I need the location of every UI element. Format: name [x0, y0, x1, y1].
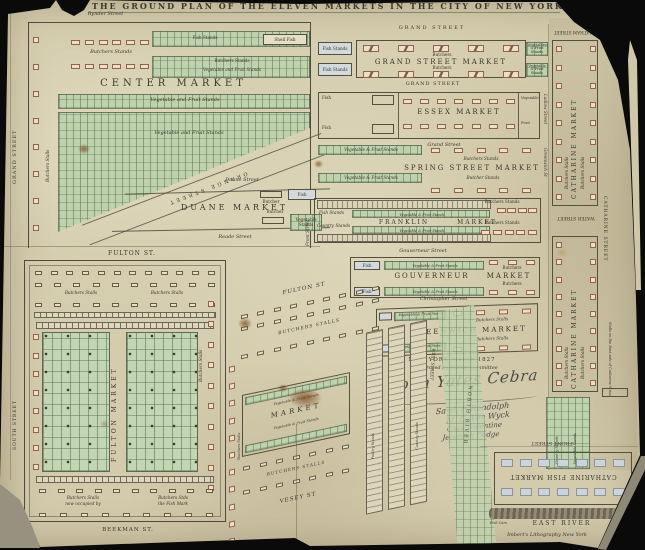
stall-box: [66, 271, 73, 275]
stall-box: [590, 277, 596, 283]
grand-fish2-box: Fish Stands: [318, 63, 352, 76]
stall-box: [208, 465, 214, 471]
stall-box: [169, 489, 176, 493]
stall-box: [590, 380, 596, 386]
stall-box: [33, 225, 39, 231]
stall-box: [229, 366, 235, 373]
franklin-veg1-label: Vegetable & Fruit Stands: [353, 213, 491, 217]
centre-stall-row: [70, 38, 150, 46]
stall-box: [260, 462, 267, 467]
stall-box: [33, 371, 39, 377]
stall-box: [229, 383, 235, 390]
stall-box: [140, 64, 149, 69]
fulton-numbered-strip: [36, 476, 214, 483]
franklin-country-label: Country Stands: [317, 224, 350, 229]
gouverneur-fish1-label: Fish: [362, 263, 371, 268]
franklin-fish-label: Fish Stands: [319, 211, 344, 216]
fulton-stall-row: [34, 269, 216, 277]
stall-box: [516, 230, 525, 235]
street-label-grand-top: GRAND STREET: [392, 26, 472, 32]
stall-box: [556, 176, 562, 182]
fold-line-horizontal: [0, 246, 320, 247]
stall-box: [557, 488, 569, 496]
grand-veg2-label: Vegetable & Fruit Stands: [527, 65, 547, 76]
stall-box: [33, 408, 39, 414]
stall-box: [208, 301, 214, 307]
centre-band2a-label: Butchers Stands: [153, 59, 311, 64]
stall-box: [326, 448, 333, 453]
stall-box: [290, 303, 297, 308]
stall-box: [33, 427, 39, 433]
fulton-stalls-right-label: Butchers Stalls: [199, 308, 204, 382]
stall-box: [528, 208, 537, 213]
spring-veg1-label: Vegetable & Fruit Stands: [319, 148, 423, 153]
stall-box: [372, 298, 379, 303]
spring-veg2-band: Vegetable & Fruit Stands: [318, 173, 422, 183]
stall-box: [33, 464, 39, 470]
stall-box: [33, 118, 39, 124]
stall-box: [73, 283, 80, 287]
stall-box: [590, 259, 596, 265]
street-label-catharine: CATHARINE STREET: [602, 196, 607, 314]
stall-box: [472, 124, 481, 129]
stall-box: [33, 64, 39, 70]
centre-stall-column: [31, 36, 41, 232]
stall-box: [243, 465, 250, 470]
fulton-numbered-strip: [34, 312, 216, 318]
franklin-veg2-label: Vegetable & Fruit Stands: [353, 229, 491, 233]
spring-butchers1-label: Butchers Stands: [438, 157, 524, 162]
catharine-market1-name: CATHARINE MARKET: [572, 49, 579, 199]
stall-box: [33, 198, 39, 204]
stall-box: [576, 459, 588, 467]
franklin-hatch-bottom: [317, 234, 491, 242]
map-title: THE GROUND PLAN OF THE ELEVEN MARKETS IN…: [92, 2, 552, 11]
stall-box: [538, 488, 550, 496]
stall-box: [454, 99, 463, 104]
stall-box: [39, 513, 46, 517]
title-rule: [88, 12, 560, 13]
franklin-butchers-row: [480, 228, 538, 236]
stall-box: [472, 99, 481, 104]
stall-box: [556, 380, 562, 386]
essex-fish1-label: Fish: [322, 96, 331, 101]
duane-fish-box: Fish: [288, 189, 316, 200]
stall-box: [35, 271, 42, 275]
stall-box: [499, 345, 508, 350]
stall-box: [260, 486, 267, 491]
stall-box: [131, 303, 138, 307]
stall-box: [58, 489, 65, 493]
fulton-market-name: FULTON MARKET: [112, 344, 119, 462]
stall-box: [229, 503, 235, 510]
stall-box: [493, 230, 502, 235]
grand-veg2-box: Vegetable & Fruit Stands: [526, 63, 548, 77]
stall-box: [506, 124, 515, 129]
catharine-m2-stalls1-label: Butchers Stalls: [565, 251, 570, 379]
stall-box: [556, 194, 562, 200]
stall-box: [189, 303, 196, 307]
stall-box: [274, 307, 281, 312]
street-label-rynder: Rynder Street: [58, 12, 153, 18]
stall-box: [522, 188, 531, 193]
stall-box: [73, 303, 80, 307]
stall-box: [556, 120, 562, 126]
washington-col2-label: Country Stands: [415, 359, 419, 450]
spring-butchers2-label: Butcher Stands: [440, 176, 526, 181]
street-label-front: Front Street: [306, 204, 311, 246]
centre-veg2-label: Vegetable and Fruit Stands: [89, 131, 289, 137]
stall-box: [76, 489, 83, 493]
grand-stall-row-top: [362, 44, 520, 52]
centre-butchers-stalls-label: Butchers Stalls: [46, 92, 51, 182]
fulton-stall-row: [38, 487, 214, 495]
essex-small-box: [372, 95, 394, 105]
centre-band2b-label: Vegetable and Fruit Stands: [153, 68, 311, 73]
stall-box: [454, 188, 463, 193]
imprint-label: Imbert's Lithography New York: [480, 533, 614, 539]
stall-box: [185, 513, 192, 517]
street-label-south: SOUTH STREET: [13, 338, 18, 450]
duane-butcher1-box: [260, 191, 282, 198]
catharine-side-note: Stalls on the East side of Catharine Str…: [608, 322, 612, 442]
stall-box: [112, 283, 119, 287]
stall-box: [192, 271, 199, 275]
stall-box: [323, 336, 330, 341]
stall-box: [274, 347, 281, 352]
stall-box: [489, 99, 498, 104]
stall-box: [590, 176, 596, 182]
stall-box: [229, 520, 235, 527]
stall-box: [54, 303, 61, 307]
stall-box: [590, 102, 596, 108]
stall-box: [326, 472, 333, 477]
spring-veg1-band: Vegetable & Fruit Stands: [318, 145, 422, 155]
catharine-stall-column: [588, 45, 597, 201]
grand-veg1-box: Vegetables & Fruit Stands: [526, 42, 548, 56]
franklin-butchers2-label: Butchers Stands: [468, 221, 536, 226]
fulton-right-grid: [126, 332, 198, 472]
stall-box: [556, 83, 562, 89]
essex-divider-right: [518, 92, 519, 139]
stall-box: [505, 230, 514, 235]
stall-box: [590, 65, 596, 71]
stall-box: [150, 489, 157, 493]
stall-box: [208, 362, 214, 368]
stall-box: [150, 303, 157, 307]
washington-column: [388, 324, 405, 510]
stall-box: [276, 458, 283, 463]
washington-col1-label: Poultry Stands: [371, 369, 375, 460]
stall-box: [590, 294, 596, 300]
stall-box: [208, 283, 215, 287]
fulton-note1b: now occupied by: [50, 502, 116, 507]
stall-box: [499, 148, 508, 153]
stall-box: [206, 513, 213, 517]
catharine-market2-name: CATHARINE MARKET: [572, 241, 579, 389]
stall-box: [437, 124, 446, 129]
stall-box: [590, 83, 596, 89]
stall-box: [556, 46, 562, 52]
stall-box: [594, 459, 606, 467]
catharine-fish-stall-row: [500, 458, 626, 468]
catharine-stall-column: [554, 45, 563, 201]
stall-box: [39, 489, 46, 493]
catharine-stall-column: [554, 241, 563, 387]
essex-veg-label: Vegetable: [521, 97, 539, 101]
fulton-left-grid: [42, 332, 110, 472]
stall-box: [557, 459, 569, 467]
stall-box: [398, 71, 414, 78]
street-label-greenwich-st: Greenwich St: [542, 148, 547, 196]
essex-fruit-label: Fruit: [521, 122, 539, 126]
catharine-fish-stall-row: [500, 487, 626, 497]
stall-box: [71, 40, 80, 45]
stall-box: [93, 303, 100, 307]
stall-box: [33, 91, 39, 97]
gouverneur-name2: MARKET: [482, 272, 536, 280]
street-label-beekman: BEEKMAN ST.: [92, 527, 164, 533]
stall-box: [477, 148, 486, 153]
fulton-stall-row: [38, 511, 214, 518]
stall-box: [257, 322, 264, 327]
stall-box: [506, 99, 515, 104]
stall-box: [290, 343, 297, 348]
stall-box: [433, 45, 449, 52]
centre-shellfish-box: Shell Fish: [263, 34, 307, 45]
stall-box: [102, 513, 109, 517]
stall-box: [170, 283, 177, 287]
stall-box: [590, 120, 596, 126]
stall-box: [433, 71, 449, 78]
stall-box: [526, 290, 535, 295]
stall-box: [556, 294, 562, 300]
catharine-m1-stalls1-label: Butchers Stalls: [565, 59, 570, 189]
stall-box: [307, 340, 314, 345]
franklin-hatch-top: [317, 200, 491, 209]
stall-box: [372, 286, 379, 291]
catharine-stall-column: [588, 241, 597, 387]
stall-box: [98, 271, 105, 275]
centre-butchers-stands-label: Butchers Stands: [72, 50, 150, 56]
stall-box: [93, 283, 100, 287]
stall-box: [556, 139, 562, 145]
fulton-stall-column-left: [31, 333, 40, 471]
stall-box: [489, 124, 498, 129]
stall-box: [276, 482, 283, 487]
stall-box: [229, 417, 235, 424]
catharine-market2-box: Butchers Stalls CATHARINE MARKET Butcher…: [552, 236, 598, 392]
stall-box: [339, 305, 346, 310]
stall-box: [274, 319, 281, 324]
stall-box: [613, 459, 625, 467]
stall-box: [208, 383, 214, 389]
stall-box: [556, 328, 562, 334]
spring-market-name: SPRING STREET MARKET: [398, 164, 546, 172]
stall-box: [54, 283, 61, 287]
fulton-stalls2-label: Butchers Stalls: [128, 291, 206, 296]
stall-box: [33, 171, 39, 177]
stall-box: [339, 293, 346, 298]
stall-box: [51, 271, 58, 275]
street-label-chatham: CHATHAM STREET: [550, 29, 600, 34]
stall-box: [556, 277, 562, 283]
centre-market-name: CENTER MARKET: [86, 78, 261, 90]
street-label-ludlow: Ludlow Street: [542, 94, 547, 138]
washington-stalls-left-label: Butchers Stalls: [237, 389, 241, 460]
stall-box: [363, 45, 379, 52]
stall-box: [33, 445, 39, 451]
stall-box: [520, 488, 532, 496]
stall-box: [189, 283, 196, 287]
duane-butcher2-label: Butcher: [262, 210, 288, 215]
stall-box: [123, 513, 130, 517]
street-label-fulton: FULTON ST.: [90, 251, 174, 258]
stall-box: [556, 65, 562, 71]
gouverneur-butchers-row: [488, 289, 536, 296]
stall-box: [522, 148, 531, 153]
stall-box: [82, 271, 89, 275]
stall-box: [33, 144, 39, 150]
stall-box: [129, 271, 136, 275]
grand-stall-row-bottom: [362, 70, 520, 78]
gouverneur-butchers2-label: Butchers: [490, 282, 534, 287]
grand-fish1-label: Fish Stands: [323, 46, 348, 51]
stall-box: [420, 99, 429, 104]
stall-box: [126, 64, 135, 69]
stall-box: [187, 489, 194, 493]
gouverneur-butchers1-label: Butchers: [490, 266, 534, 271]
essex-stall-row-bottom: [402, 122, 516, 130]
stall-box: [497, 208, 506, 213]
stall-box: [164, 513, 171, 517]
stall-box: [538, 459, 550, 467]
stall-box: [112, 64, 121, 69]
stall-box: [477, 188, 486, 193]
stall-box: [33, 390, 39, 396]
stall-box: [454, 148, 463, 153]
stall-box: [507, 208, 516, 213]
stall-box: [208, 342, 214, 348]
stall-box: [229, 451, 235, 458]
centre-fish-band: Fish Stands Shell Fish: [152, 31, 310, 47]
franklin-butchers1-label: Butchers Stands: [468, 200, 536, 205]
stall-box: [95, 489, 102, 493]
street-label-grand-bottom: GRAND STREET: [395, 82, 471, 88]
fulton-numbered-strip: [36, 322, 214, 329]
stall-box: [307, 300, 314, 305]
stall-box: [229, 486, 235, 493]
stall-box: [208, 403, 214, 409]
stall-box: [468, 45, 484, 52]
stall-box: [518, 208, 527, 213]
stall-box: [501, 459, 513, 467]
stall-box: [431, 148, 440, 153]
stall-box: [468, 71, 484, 78]
stall-box: [35, 303, 42, 307]
stall-box: [356, 289, 363, 294]
catharine-m1-stalls2-label: Butchers Stalls: [581, 59, 586, 189]
stall-box: [309, 475, 316, 480]
stall-box: [590, 328, 596, 334]
centre-veg-band: Vegetable and Fruit Stands: [58, 94, 310, 109]
stall-box: [99, 40, 108, 45]
fulton-stall-row: [34, 281, 216, 289]
fulton-note-right: Butchers Stds the Fish Mark: [136, 496, 210, 509]
map-sheet-photo: THE GROUND PLAN OF THE ELEVEN MARKETS IN…: [0, 0, 645, 550]
duane-butcher2-box: [262, 217, 284, 224]
washington-stall-column: [228, 364, 236, 546]
stall-box: [363, 71, 379, 78]
street-label-grand-left: GRAND STREET: [13, 64, 19, 184]
stall-box: [33, 37, 39, 43]
scale-box: [602, 388, 628, 397]
fulton-note2b: the Fish Mark: [136, 502, 210, 507]
stall-box: [481, 230, 490, 235]
stall-box: [85, 40, 94, 45]
stall-box: [309, 451, 316, 456]
stall-box: [499, 309, 508, 314]
stall-box: [594, 488, 606, 496]
street-label-water: WATER STREET: [550, 215, 602, 220]
stall-box: [99, 64, 108, 69]
stall-box: [170, 303, 177, 307]
stall-box: [112, 303, 119, 307]
essex-stall-row-top: [402, 97, 516, 105]
stall-box: [71, 64, 80, 69]
fulton-stall-row: [34, 301, 216, 309]
stall-box: [323, 308, 330, 313]
stall-box: [526, 260, 535, 265]
street-label-duane: Duane Street: [212, 178, 272, 184]
stall-box: [257, 350, 264, 355]
stall-box: [590, 242, 596, 248]
spring-stall-row-bottom: [430, 186, 532, 195]
fold-line-vertical: [296, 424, 297, 546]
stall-box: [208, 444, 214, 450]
stall-box: [150, 283, 157, 287]
stall-box: [590, 157, 596, 163]
stall-box: [176, 271, 183, 275]
stall-box: [81, 513, 88, 517]
stall-box: [520, 459, 532, 467]
stall-box: [208, 424, 214, 430]
stall-box: [403, 99, 412, 104]
stall-box: [114, 271, 121, 275]
stall-box: [556, 346, 562, 352]
map-paper: THE GROUND PLAN OF THE ELEVEN MARKETS IN…: [0, 0, 645, 550]
stall-box: [508, 290, 517, 295]
stall-box: [590, 46, 596, 52]
centre-band2: Butchers Stands Vegetable and Fruit Stan…: [152, 56, 310, 78]
catharine-fish-market-name: CATHARINE FISH MARKET: [500, 472, 626, 479]
stall-box: [556, 311, 562, 317]
stall-box: [437, 99, 446, 104]
grand-veg1-label: Vegetables & Fruit Stands: [527, 44, 547, 55]
grand-fish1-box: Fish Stands: [318, 42, 352, 55]
centre-fish-label: Fish Stands: [155, 36, 255, 41]
stall-box: [356, 329, 363, 334]
stall-box: [590, 363, 596, 369]
stall-box: [501, 488, 513, 496]
spring-stall-row-top: [430, 146, 532, 155]
stall-box: [590, 194, 596, 200]
stall-box: [208, 321, 214, 327]
stall-box: [241, 354, 248, 359]
catharine-m2-stalls2-label: Butchers Stalls: [581, 251, 586, 379]
stall-box: [323, 296, 330, 301]
stall-box: [556, 102, 562, 108]
